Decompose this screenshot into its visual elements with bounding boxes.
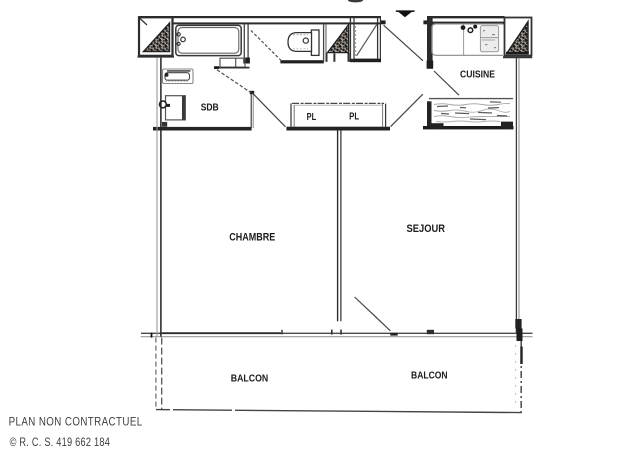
- svg-text:CHAMBRE: CHAMBRE: [229, 231, 275, 243]
- svg-text:PLAN NON CONTRACTUEL: PLAN NON CONTRACTUEL: [9, 415, 143, 429]
- svg-text:PL: PL: [307, 112, 317, 123]
- svg-text:BALCON: BALCON: [231, 372, 269, 384]
- svg-text:SEJOUR: SEJOUR: [407, 223, 446, 235]
- svg-text:CUISINE: CUISINE: [460, 69, 495, 81]
- svg-text:PL: PL: [349, 112, 359, 123]
- svg-text:SDB: SDB: [201, 102, 219, 114]
- svg-text:© R. C. S. 419 662 184: © R. C. S. 419 662 184: [10, 435, 111, 449]
- svg-text:BALCON: BALCON: [411, 370, 448, 382]
